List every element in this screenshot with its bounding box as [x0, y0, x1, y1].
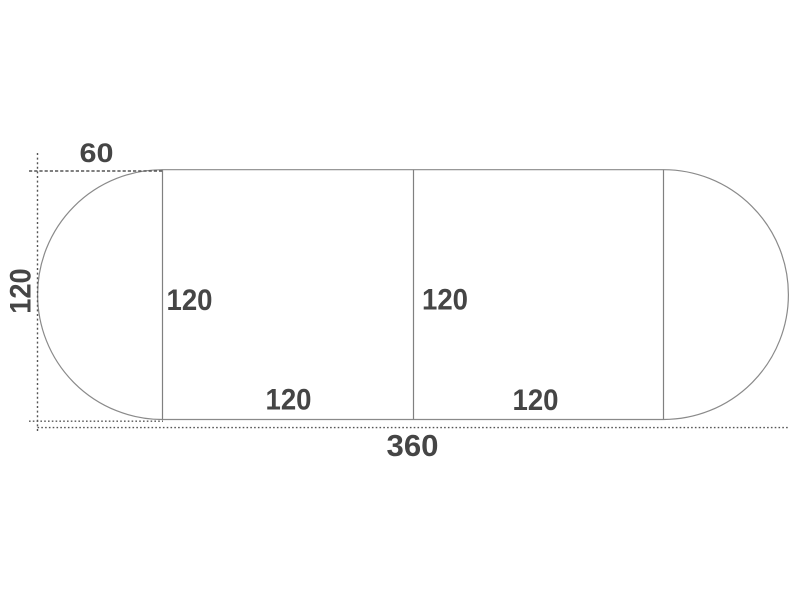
- svg-text:120: 120: [167, 284, 213, 317]
- svg-text:120: 120: [266, 384, 312, 417]
- svg-text:120: 120: [513, 384, 559, 417]
- svg-text:60: 60: [80, 138, 114, 168]
- svg-text:120: 120: [5, 268, 38, 314]
- svg-text:120: 120: [422, 284, 468, 317]
- svg-text:360: 360: [387, 428, 439, 463]
